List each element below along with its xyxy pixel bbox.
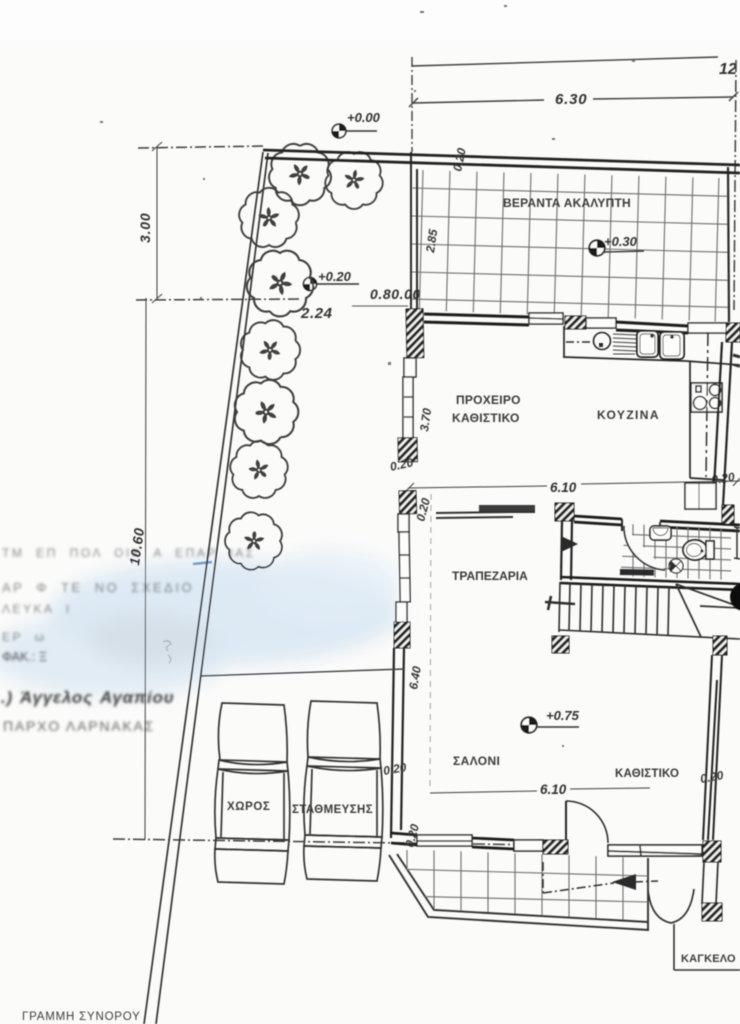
svg-text:ΦΑΚ.: Ξ: ΦΑΚ.: Ξ [2, 650, 47, 664]
svg-text:ΚΟΥΖΙΝΑ: ΚΟΥΖΙΝΑ [597, 408, 660, 422]
svg-text:ΚΑΘΙΣΤΙΚΟ: ΚΑΘΙΣΤΙΚΟ [452, 411, 520, 425]
svg-text:ΛΕΥΚΑ Ι: ΛΕΥΚΑ Ι [2, 602, 72, 616]
svg-text:6.10: 6.10 [540, 782, 567, 797]
svg-text:12: 12 [719, 61, 737, 78]
svg-text:ΚΑΓΚΕΛΟ: ΚΑΓΚΕΛΟ [681, 953, 736, 965]
svg-text:ΣΑΛΟΝΙ: ΣΑΛΟΝΙ [453, 754, 500, 768]
svg-text:+0.30: +0.30 [604, 234, 638, 249]
svg-text:+0.75: +0.75 [546, 708, 580, 723]
svg-text:3.00: 3.00 [137, 213, 153, 243]
svg-text:ΠΡΟΧΕΙΡΟ: ΠΡΟΧΕΙΡΟ [456, 393, 521, 407]
svg-text:ΧΩΡΟΣ: ΧΩΡΟΣ [227, 801, 270, 813]
svg-text:ΒΕΡΑΝΤΑ ΑΚΑΛΥΠΤΗ: ΒΕΡΑΝΤΑ ΑΚΑΛΥΠΤΗ [503, 196, 631, 210]
svg-text:ΤΡΑΠΕΖΑΡΙΑ: ΤΡΑΠΕΖΑΡΙΑ [452, 569, 528, 583]
svg-text:ΚΑΘΙΣΤΙΚΟ: ΚΑΘΙΣΤΙΚΟ [615, 768, 679, 780]
svg-text:ΕΡ ω: ΕΡ ω [2, 630, 47, 644]
svg-text:ΠΑΡΧΟ ΛΑΡΝΑΚΑΣ: ΠΑΡΧΟ ΛΑΡΝΑΚΑΣ [3, 718, 155, 734]
svg-text:ΑΡ Φ ΤΕ ΝΟ ΣΧΕΔΙΟ: ΑΡ Φ ΤΕ ΝΟ ΣΧΕΔΙΟ [2, 580, 194, 595]
svg-text:ΓΡΑΜΜΗ ΣΥΝΟΡΟΥ: ΓΡΑΜΜΗ ΣΥΝΟΡΟΥ [22, 1011, 141, 1023]
svg-text:2.24: 2.24 [300, 305, 333, 322]
svg-text:6.10: 6.10 [550, 480, 577, 495]
svg-text:+0.00: +0.00 [347, 110, 381, 125]
svg-text:+0.20: +0.20 [318, 269, 352, 284]
svg-text:.) Άγγελος Αγαπίου: .) Άγγελος Αγαπίου [1, 688, 175, 707]
svg-text:6.30: 6.30 [555, 91, 587, 108]
svg-text:ΣΤΑΘΜΕΥΣΗΣ: ΣΤΑΘΜΕΥΣΗΣ [292, 804, 373, 816]
